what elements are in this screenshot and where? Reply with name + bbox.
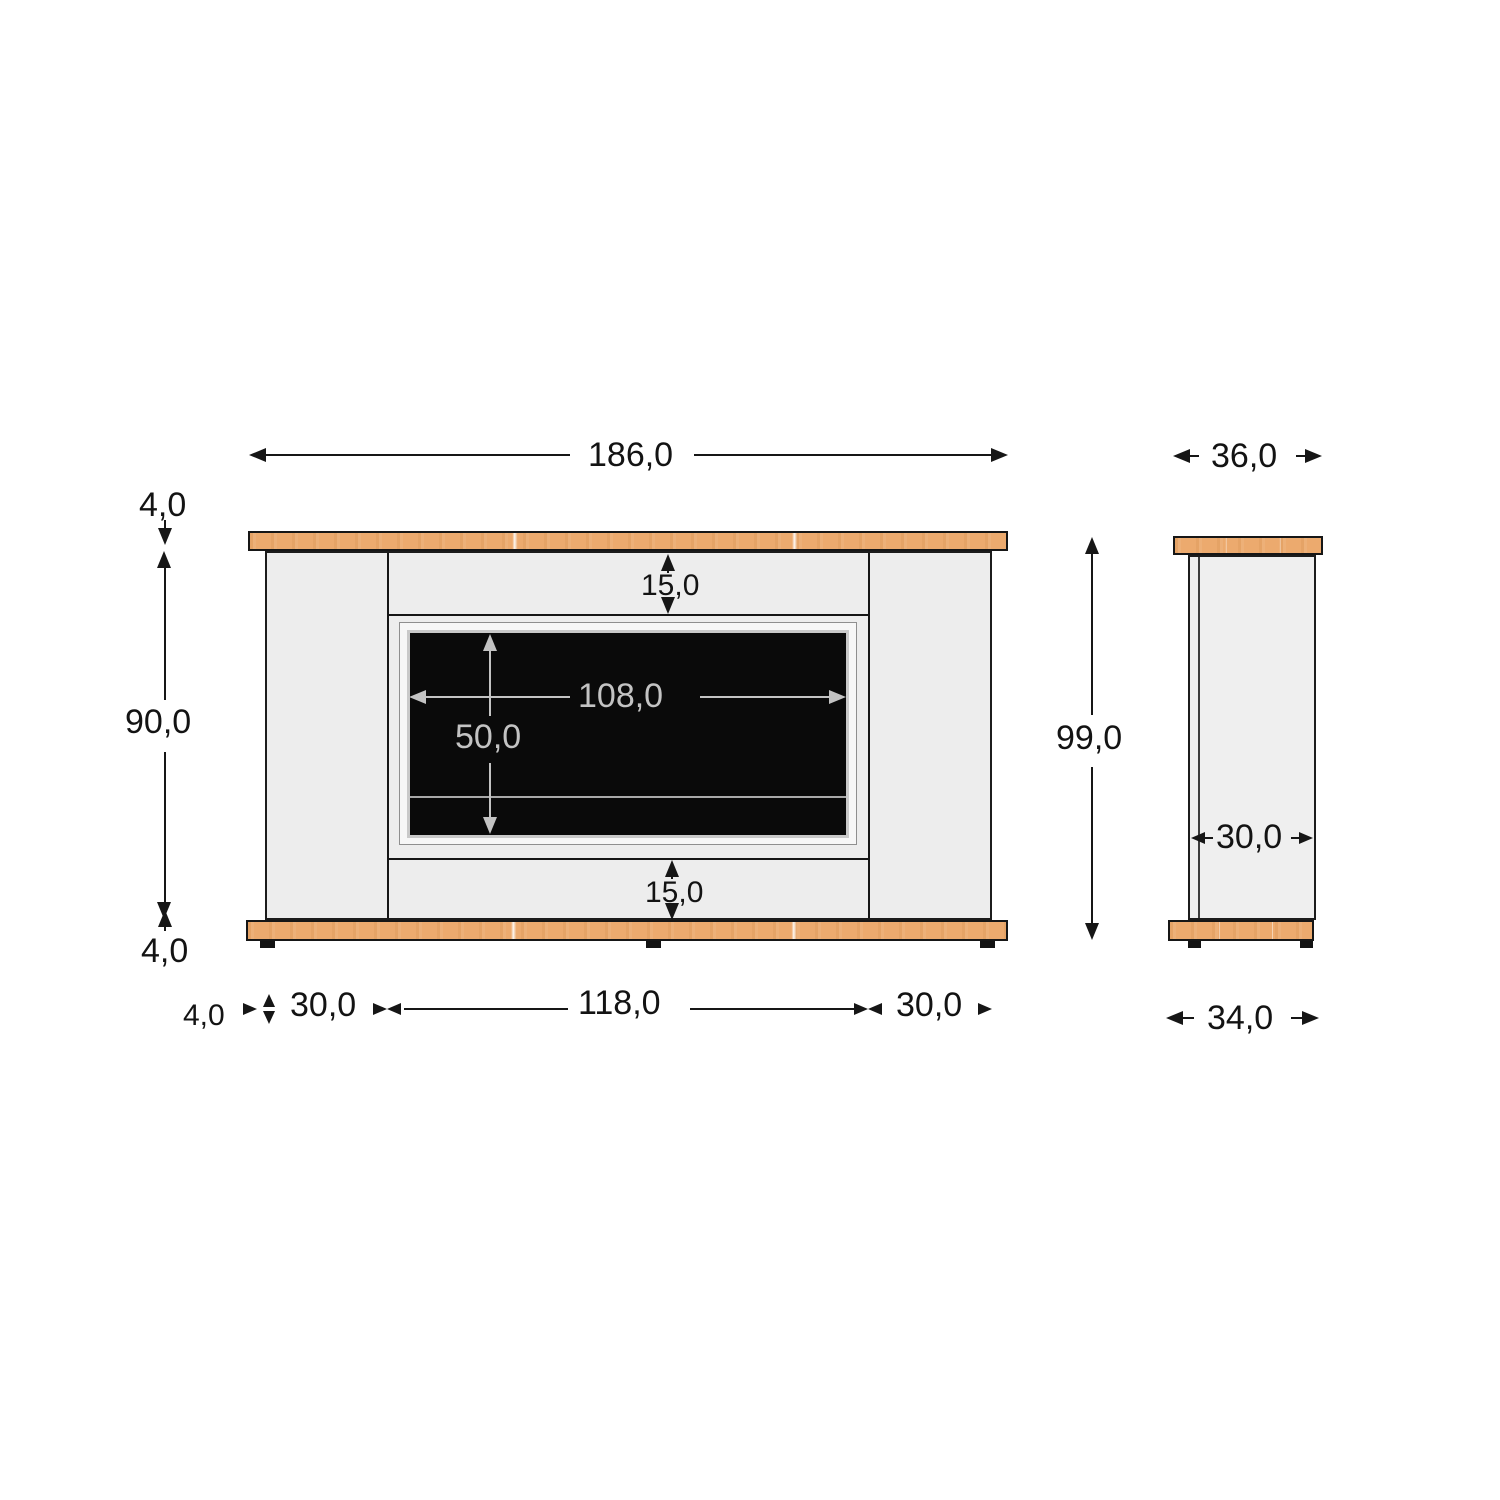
dim-label: 108,0 (578, 679, 663, 715)
dim-label: 36,0 (1211, 439, 1277, 475)
arrowhead-right (1302, 1011, 1319, 1025)
dim-line (258, 454, 570, 456)
dim-line (1091, 767, 1093, 925)
arrowhead-left (1166, 1011, 1183, 1025)
dim-line (690, 1008, 856, 1010)
front-left-column-divider (387, 553, 389, 918)
arrowhead-right (829, 690, 846, 704)
dim-line (164, 925, 166, 931)
side-bottom-board (1168, 920, 1314, 941)
dimension-drawing: 186,0 4,0 90,0 4,0 15,0 108,0 (0, 0, 1500, 1500)
dim-line (694, 454, 994, 456)
front-bottom-board (246, 920, 1008, 941)
dim-line (489, 649, 491, 716)
dim-line (1189, 455, 1199, 457)
dim-line (1291, 837, 1299, 839)
dim-line (164, 566, 166, 700)
side-foot-back (1300, 941, 1313, 948)
side-top-board (1173, 536, 1323, 555)
dim-label: 30,0 (1216, 820, 1282, 856)
dim-label: 99,0 (1056, 721, 1122, 757)
dim-label: 4,0 (139, 488, 186, 524)
side-body-panel (1188, 555, 1316, 920)
dim-line (1205, 837, 1213, 839)
dim-label-left-column: 30,0 (290, 988, 356, 1024)
screen-fuel-bed-line (410, 796, 846, 798)
front-foot-left (260, 941, 275, 948)
dim-label: 90,0 (125, 705, 191, 741)
dim-label: 186,0 (588, 438, 673, 474)
front-foot-center (646, 941, 661, 948)
dim-line (700, 696, 831, 698)
arrowhead-up (263, 994, 275, 1007)
dim-label-overhang: 4,0 (183, 1000, 225, 1032)
dim-line (164, 752, 166, 904)
arrowhead-right (373, 1003, 387, 1015)
dim-line (404, 1008, 568, 1010)
front-foot-right (980, 941, 995, 948)
dim-label: 34,0 (1207, 1001, 1273, 1037)
side-front-edge-line (1198, 557, 1200, 918)
arrowhead-down (661, 597, 675, 614)
front-top-board (248, 531, 1008, 551)
arrowhead-left (387, 1003, 401, 1015)
arrowhead-down (158, 528, 172, 545)
dim-label: 4,0 (141, 934, 188, 970)
arrowhead-down (1085, 923, 1099, 940)
arrowhead-down (665, 903, 679, 920)
arrowhead-right (854, 1003, 868, 1015)
arrowhead-right (1299, 832, 1313, 844)
arrowhead-left (1191, 832, 1205, 844)
arrowhead-right (1305, 449, 1322, 463)
front-right-column-divider (868, 553, 870, 918)
arrowhead-right (991, 448, 1008, 462)
arrowhead-down (263, 1011, 275, 1024)
dim-label: 50,0 (455, 720, 521, 756)
arrowhead-left (868, 1003, 882, 1015)
arrowhead-right (243, 1003, 257, 1015)
dim-line (1091, 552, 1093, 715)
front-bottom-reveal-line (389, 858, 868, 860)
arrowhead-right (978, 1003, 992, 1015)
dim-label-right-column: 30,0 (896, 988, 962, 1024)
front-top-reveal-line (389, 614, 868, 616)
arrowhead-left (1173, 449, 1190, 463)
dim-line (1182, 1017, 1194, 1019)
side-foot-front (1188, 941, 1201, 948)
dim-line (489, 763, 491, 819)
dim-label-center-width: 118,0 (578, 986, 661, 1022)
dim-line (424, 696, 570, 698)
arrowhead-down (483, 817, 497, 834)
